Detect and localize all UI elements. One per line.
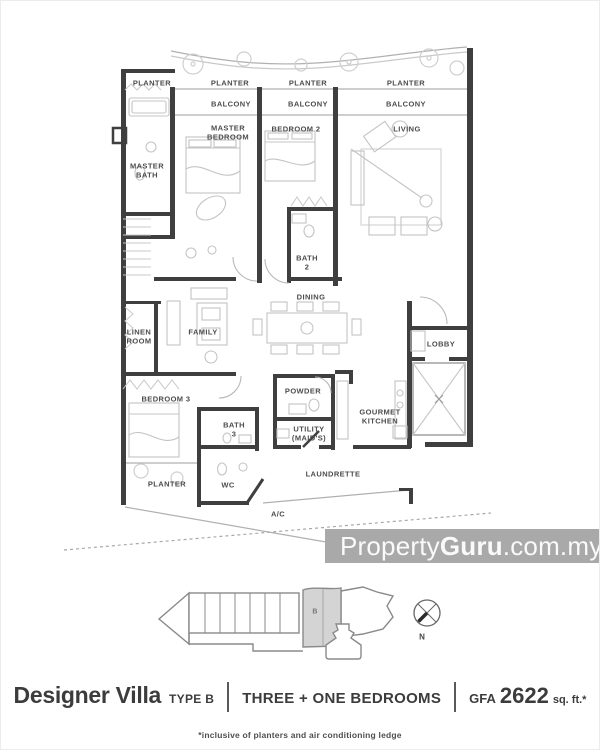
room-label-planter-1: PLANTER [211, 78, 249, 87]
room-label-balcony-3: BALCONY [386, 99, 426, 108]
plan-bedrooms: THREE + ONE BEDROOMS [242, 690, 441, 707]
room-label-living: LIVING [393, 124, 420, 133]
room-label-bedroom-3: BEDROOM 3 [141, 394, 190, 403]
floor-plan-page: PLANTER PLANTER PLANTER PLANTER BALCONY … [0, 0, 600, 750]
room-label-master-bedroom: MASTER BEDROOM [207, 124, 249, 143]
plan-type: TYPE B [169, 692, 214, 706]
key-plan-unit-b-label: B [312, 609, 317, 616]
room-label-bedroom-2: BEDROOM 2 [271, 124, 320, 133]
thin-lines [64, 47, 491, 550]
watermark-domain-suffix: .com.my [503, 531, 600, 562]
room-label-wc: WC [221, 480, 234, 489]
room-label-bath-2: BATH 2 [296, 254, 318, 273]
compass-icon [414, 600, 440, 626]
room-label-ac: A/C [271, 509, 285, 518]
gfa-label: GFA [469, 691, 496, 706]
plan-title: Designer Villa [14, 682, 162, 709]
watermark-brand-regular: Property [340, 531, 440, 562]
room-label-planter-top-left: PLANTER [133, 78, 171, 87]
room-label-planter-2: PLANTER [289, 78, 327, 87]
watermark-bar: PropertyGuru.com.my [325, 529, 600, 563]
title-divider-1 [227, 682, 229, 712]
gfa-unit: sq. ft.* [553, 694, 587, 706]
title-bar: Designer Villa TYPE B THREE + ONE BEDROO… [1, 682, 599, 712]
room-label-powder: POWDER [285, 386, 321, 395]
compass-north-label: N [419, 633, 425, 642]
key-plan [159, 587, 393, 659]
room-label-utility-maids: UTILITY (MAID'S) [292, 425, 326, 444]
room-label-master-bath: MASTER BATH [130, 162, 164, 181]
room-label-balcony-1: BALCONY [211, 99, 251, 108]
room-label-lobby: LOBBY [427, 339, 455, 348]
room-label-planter-3: PLANTER [387, 78, 425, 87]
room-label-linen-room: LINEN ROOM [127, 328, 152, 347]
footnote: *inclusive of planters and air condition… [1, 730, 599, 740]
room-label-planter-bottom: PLANTER [148, 479, 186, 488]
floor-plan-drawing [1, 1, 600, 750]
title-divider-2 [454, 682, 456, 712]
room-label-balcony-2: BALCONY [288, 99, 328, 108]
watermark-brand-bold: Guru [440, 531, 503, 562]
gfa-value: 2622 [500, 683, 549, 709]
room-label-family: FAMILY [188, 327, 217, 336]
room-label-gourmet-kitchen: GOURMET KITCHEN [359, 408, 400, 427]
room-label-bath-3: BATH 3 [223, 421, 245, 440]
room-label-dining: DINING [297, 292, 326, 301]
room-label-laundrette: LAUNDRETTE [306, 469, 361, 478]
